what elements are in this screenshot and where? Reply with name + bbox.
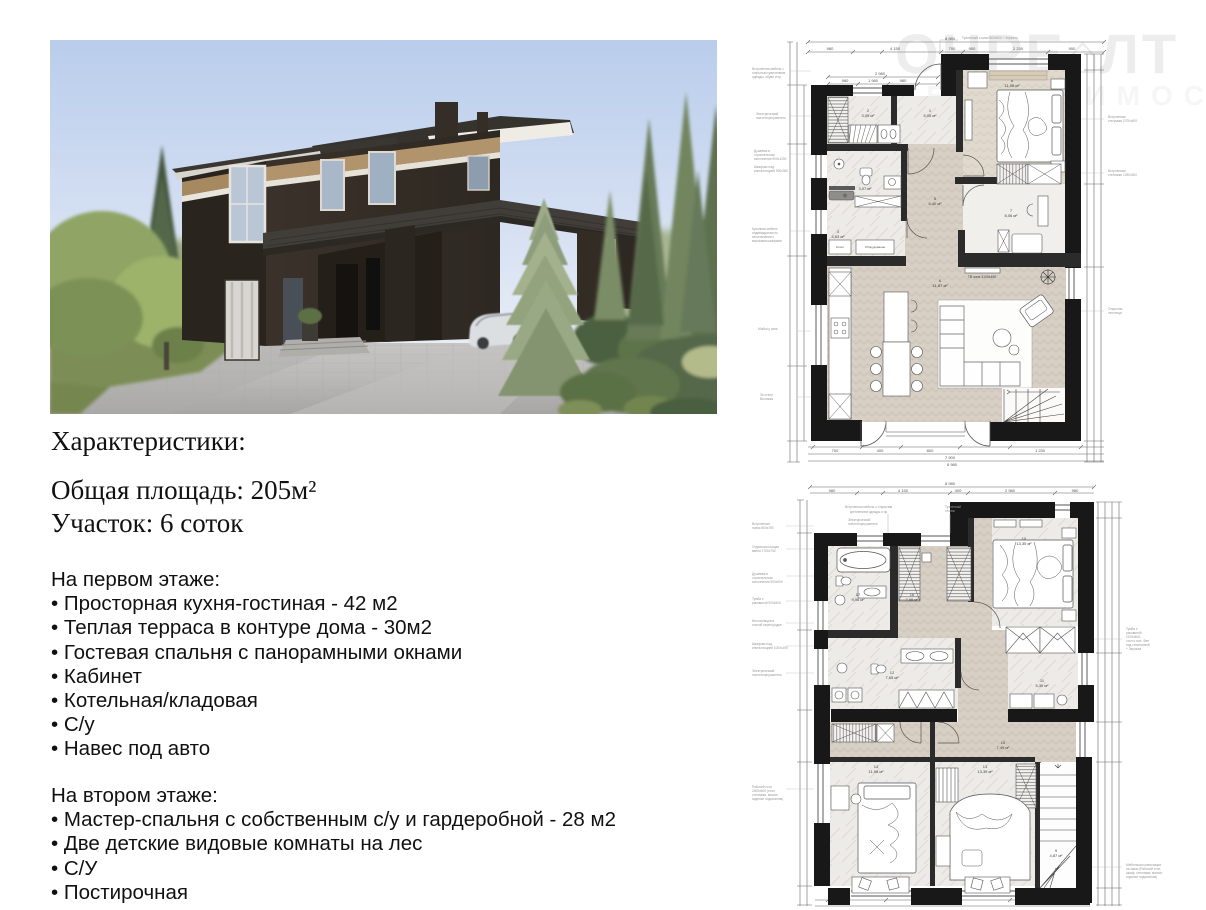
svg-text:7,65 м²: 7,65 м² [886,675,900,680]
svg-text:800: 800 [927,448,934,453]
svg-text:1 980: 1 980 [868,78,879,83]
svg-text:1 230: 1 230 [1035,448,1046,453]
svg-text:стеллажи 1250х300: стеллажи 1250х300 [1108,173,1137,177]
svg-text:9,96 м²: 9,96 м² [852,597,866,602]
svg-text:6,40 м²: 6,40 м² [929,201,943,206]
svg-text:13,39 м²: 13,39 м² [977,769,993,774]
svg-text:2 980: 2 980 [875,71,886,76]
svg-text:Мойка у окна: Мойка у окна [758,327,778,331]
svg-text:8,06 м²: 8,06 м² [1005,213,1019,218]
svg-text:раковиной 900х500: раковиной 900х500 [752,601,781,605]
svg-text:полкой перегородке: полкой перегородке [752,623,782,627]
svg-text:7,49 м²: 7,49 м² [997,745,1011,750]
svg-text:лестница: лестница [1108,311,1122,315]
svg-text:4,87 м²: 4,87 м² [1050,853,1064,858]
svg-text:4 150: 4 150 [890,46,901,51]
svg-text:980: 980 [1072,488,1079,493]
svg-text:900: 900 [969,46,976,51]
svg-text:Встроенная мебель с открытым: Встроенная мебель с открытым [845,505,892,509]
svg-text:700: 700 [832,448,839,453]
svg-text:13,35 м²: 13,35 м² [1016,541,1032,546]
svg-text:2 230: 2 230 [1013,46,1024,51]
svg-text:ванна 1700х750: ванна 1700х750 [752,549,776,553]
svg-text:Котел: Котел [836,245,844,249]
svg-text:инсталляцией 1000х190: инсталляцией 1000х190 [752,646,788,650]
svg-text:4 150: 4 150 [898,488,909,493]
svg-text:900: 900 [1069,46,1076,51]
svg-text:сиденье подоконник): сиденье подоконник) [1126,875,1157,879]
svg-text:400: 400 [877,448,884,453]
svg-text:Оборудование: Оборудование [865,245,886,249]
svg-text:980: 980 [827,46,834,51]
svg-text:3,07 м²: 3,07 м² [859,186,873,191]
svg-text:сиденье подоконник): сиденье подоконник) [752,797,783,801]
svg-text:8 980: 8 980 [947,462,958,467]
svg-text:11,08 м²: 11,08 м² [1005,83,1021,88]
svg-text:980: 980 [842,78,849,83]
svg-text:инсталляцией 900х300: инсталляцией 900х300 [754,169,788,173]
svg-text:+ Зеркала: + Зеркала [1126,647,1141,651]
svg-text:полотенцесушитель: полотенцесушитель [848,522,878,526]
svg-text:полотенцесушитель: полотенцесушитель [756,116,786,120]
svg-text:7 900: 7 900 [945,455,956,460]
svg-text:Вытяжка: Вытяжка [760,397,773,401]
svg-text:700: 700 [949,46,956,51]
svg-text:4,63 м²: 4,63 м² [832,234,846,239]
svg-text:исполнении 900х900: исполнении 900х900 [752,580,783,584]
svg-text:полки 800х190: полки 800х190 [752,526,774,530]
svg-text:980: 980 [829,488,836,493]
svg-text:2 980: 2 980 [1005,488,1016,493]
svg-text:7,06 м²: 7,06 м² [906,597,920,602]
svg-text:41,87 м²: 41,87 м² [932,283,948,288]
svg-text:высокими шкафами: высокими шкафами [752,239,782,243]
svg-text:8 980: 8 980 [945,481,956,486]
svg-text:Туалетный столик 800х500 + Зер: Туалетный столик 800х500 + Зеркало [962,36,1018,40]
svg-text:3,09 м²: 3,09 м² [862,113,876,118]
svg-text:ТВ зона 3100х450: ТВ зона 3100х450 [968,275,996,279]
svg-text:11,98 м²: 11,98 м² [869,769,885,774]
svg-text:полотенцесушитель: полотенцесушитель [752,673,782,677]
svg-text:исполнении 900х1200: исполнении 900х1200 [754,157,787,161]
svg-text:креплением одежды и пр.: креплением одежды и пр. [850,510,888,514]
svg-text:одежды, обуви и пр.: одежды, обуви и пр. [752,75,782,79]
svg-text:5,05 м²: 5,05 м² [924,113,938,118]
svg-text:980: 980 [900,78,907,83]
svg-text:5,30 м²: 5,30 м² [1036,683,1050,688]
svg-text:стеллажи 2700х400: стеллажи 2700х400 [1108,119,1137,123]
svg-text:400: 400 [955,488,962,493]
svg-text:столик: столик [945,509,955,513]
